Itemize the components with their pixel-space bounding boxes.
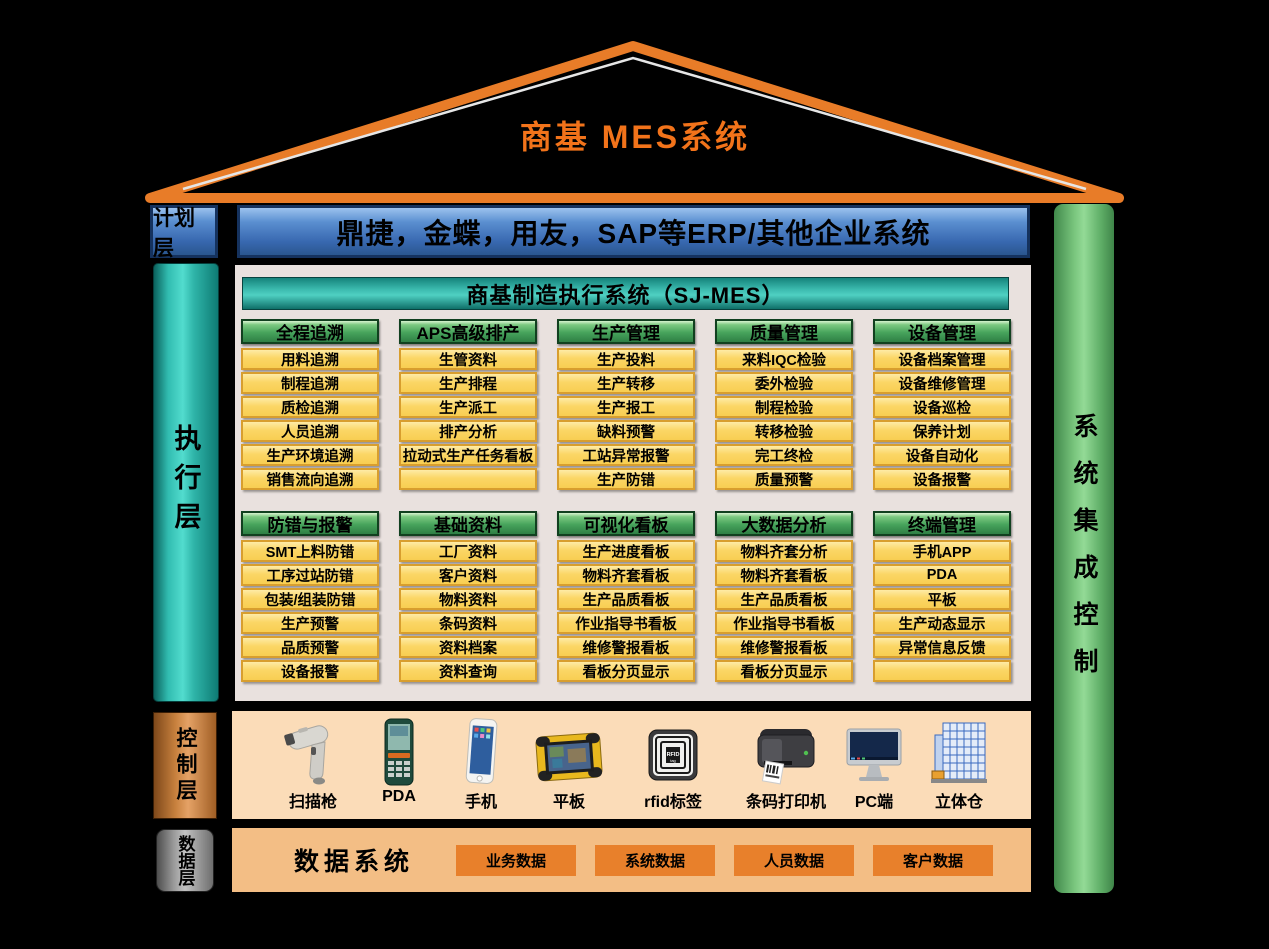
module-item: 平板 <box>873 588 1011 610</box>
module-item: 来料IQC检验 <box>715 348 853 370</box>
device-label: PDA <box>377 788 421 806</box>
module-item: 生产品质看板 <box>557 588 695 610</box>
device-label: rfid标签 <box>642 788 704 812</box>
module-item: 生产品质看板 <box>715 588 853 610</box>
module-item: 手机APP <box>873 540 1011 562</box>
module-item: 看板分页显示 <box>715 660 853 682</box>
control-content: 扫描枪 PDA 手机 平板 RFID tagrfid标签 <box>232 711 1031 819</box>
system-integration-bar: 系统集成控制 <box>1054 204 1114 893</box>
rfid-icon: RFID tag <box>642 715 704 787</box>
data-chip: 系统数据 <box>595 845 715 876</box>
module-item: 生产投料 <box>557 348 695 370</box>
module-item: 作业指导书看板 <box>715 612 853 634</box>
module-item: 资料查询 <box>399 660 537 682</box>
module-items: 来料IQC检验委外检验制程检验转移检验完工终检质量预警 <box>715 348 853 490</box>
module-item: 保养计划 <box>873 420 1011 442</box>
module-group: 防错与报警SMT上料防错工序过站防错包装/组装防错生产预警品质预警设备报警 <box>241 511 379 682</box>
module-header: 大数据分析 <box>715 511 853 536</box>
data-chips: 业务数据系统数据人员数据客户数据 <box>456 845 993 876</box>
module-group: APS高级排产生管资料生产排程生产派工排产分析拉动式生产任务看板 <box>399 319 537 490</box>
module-item: 资料档案 <box>399 636 537 658</box>
module-group: 大数据分析物料齐套分析物料齐套看板生产品质看板作业指导书看板维修警报看板看板分页… <box>715 511 853 682</box>
module-header: 终端管理 <box>873 511 1011 536</box>
module-item: 异常信息反馈 <box>873 636 1011 658</box>
module-item: 排产分析 <box>399 420 537 442</box>
module-items: 物料齐套分析物料齐套看板生产品质看板作业指导书看板维修警报看板看板分页显示 <box>715 540 853 682</box>
module-item: 完工终检 <box>715 444 853 466</box>
module-item: 制程追溯 <box>241 372 379 394</box>
module-item: 生产报工 <box>557 396 695 418</box>
data-system-title: 数据系统 <box>294 828 414 892</box>
device-label: 立体仓 <box>927 788 991 812</box>
module-item: 工序过站防错 <box>241 564 379 586</box>
device: 平板 <box>532 715 606 812</box>
module-items: SMT上料防错工序过站防错包装/组装防错生产预警品质预警设备报警 <box>241 540 379 682</box>
module-item: 物料齐套分析 <box>715 540 853 562</box>
module-item: 品质预警 <box>241 636 379 658</box>
device-label: PC端 <box>841 788 907 812</box>
device: RFID tagrfid标签 <box>642 715 704 812</box>
module-item: 生产排程 <box>399 372 537 394</box>
module-item: 维修警报看板 <box>557 636 695 658</box>
device-label: 手机 <box>460 788 502 812</box>
module-group: 质量管理来料IQC检验委外检验制程检验转移检验完工终检质量预警 <box>715 319 853 490</box>
module-header: 全程追溯 <box>241 319 379 344</box>
data-content: 数据系统 业务数据系统数据人员数据客户数据 <box>232 828 1031 892</box>
data-chip: 客户数据 <box>873 845 993 876</box>
module-item: 人员追溯 <box>241 420 379 442</box>
module-items: 设备档案管理设备维修管理设备巡检保养计划设备自动化设备报警 <box>873 348 1011 490</box>
device-label: 平板 <box>532 788 606 812</box>
device: 立体仓 <box>927 715 991 812</box>
module-group: 设备管理设备档案管理设备维修管理设备巡检保养计划设备自动化设备报警 <box>873 319 1011 490</box>
scanner-icon <box>278 715 348 787</box>
warehouse-icon <box>927 715 991 787</box>
module-header: 质量管理 <box>715 319 853 344</box>
module-items: 生管资料生产排程生产派工排产分析拉动式生产任务看板 <box>399 348 537 490</box>
module-items: 工厂资料客户资料物料资料条码资料资料档案资料查询 <box>399 540 537 682</box>
module-item: 销售流向追溯 <box>241 468 379 490</box>
module-item: 设备报警 <box>241 660 379 682</box>
module-item: 设备自动化 <box>873 444 1011 466</box>
pda-icon <box>377 715 421 787</box>
module-item: 转移检验 <box>715 420 853 442</box>
page-title: 商基 MES系统 <box>380 112 890 162</box>
device-label: 扫描枪 <box>278 788 348 812</box>
module-item: 缺料预警 <box>557 420 695 442</box>
module-header: APS高级排产 <box>399 319 537 344</box>
module-item: 委外检验 <box>715 372 853 394</box>
execution-layer-label: 执行层 <box>153 263 219 702</box>
device: PC端 <box>841 715 907 812</box>
device: 条码打印机 <box>746 715 826 812</box>
module-item <box>873 660 1011 682</box>
module-item: 物料齐套看板 <box>557 564 695 586</box>
module-item: 生产派工 <box>399 396 537 418</box>
module-items: 用料追溯制程追溯质检追溯人员追溯生产环境追溯销售流向追溯 <box>241 348 379 490</box>
module-row-bottom: 防错与报警SMT上料防错工序过站防错包装/组装防错生产预警品质预警设备报警基础资… <box>241 511 1011 682</box>
module-items: 生产投料生产转移生产报工缺料预警工站异常报警生产防错 <box>557 348 695 490</box>
module-item: 客户资料 <box>399 564 537 586</box>
module-item: 用料追溯 <box>241 348 379 370</box>
module-item: 生管资料 <box>399 348 537 370</box>
data-chip: 业务数据 <box>456 845 576 876</box>
data-layer-label: 数据层 <box>156 829 214 892</box>
module-item: 条码资料 <box>399 612 537 634</box>
module-item: 生产转移 <box>557 372 695 394</box>
device: 手机 <box>460 715 502 812</box>
module-item: SMT上料防错 <box>241 540 379 562</box>
module-item: 质量预警 <box>715 468 853 490</box>
data-chip: 人员数据 <box>734 845 854 876</box>
module-item: 作业指导书看板 <box>557 612 695 634</box>
module-items: 手机APPPDA平板生产动态显示异常信息反馈 <box>873 540 1011 682</box>
module-item: 设备档案管理 <box>873 348 1011 370</box>
pc-icon <box>841 715 907 787</box>
module-item: 生产防错 <box>557 468 695 490</box>
mes-panel-header: 商基制造执行系统（SJ-MES） <box>242 277 1009 310</box>
control-layer-label: 控制层 <box>153 712 217 819</box>
module-item: 制程检验 <box>715 396 853 418</box>
module-group: 终端管理手机APPPDA平板生产动态显示异常信息反馈 <box>873 511 1011 682</box>
module-group: 全程追溯用料追溯制程追溯质检追溯人员追溯生产环境追溯销售流向追溯 <box>241 319 379 490</box>
module-group: 可视化看板生产进度看板物料齐套看板生产品质看板作业指导书看板维修警报看板看板分页… <box>557 511 695 682</box>
module-group: 生产管理生产投料生产转移生产报工缺料预警工站异常报警生产防错 <box>557 319 695 490</box>
plan-layer-label: 计划层 <box>150 205 218 258</box>
barcode-printer-icon <box>746 715 826 787</box>
module-item: 生产预警 <box>241 612 379 634</box>
module-item: 质检追溯 <box>241 396 379 418</box>
module-item: 维修警报看板 <box>715 636 853 658</box>
module-items: 生产进度看板物料齐套看板生产品质看板作业指导书看板维修警报看板看板分页显示 <box>557 540 695 682</box>
module-item: 设备维修管理 <box>873 372 1011 394</box>
roof-outline <box>0 0 1269 220</box>
module-item: 设备报警 <box>873 468 1011 490</box>
module-header: 生产管理 <box>557 319 695 344</box>
module-item: 生产动态显示 <box>873 612 1011 634</box>
svg-text:tag: tag <box>670 758 676 763</box>
module-item: 包装/组装防错 <box>241 588 379 610</box>
module-header: 基础资料 <box>399 511 537 536</box>
module-item: 看板分页显示 <box>557 660 695 682</box>
module-item: 生产环境追溯 <box>241 444 379 466</box>
module-header: 设备管理 <box>873 319 1011 344</box>
device-label: 条码打印机 <box>746 788 826 812</box>
module-item: 工厂资料 <box>399 540 537 562</box>
module-item: 工站异常报警 <box>557 444 695 466</box>
module-item: 设备巡检 <box>873 396 1011 418</box>
tablet-icon <box>532 715 606 787</box>
device: PDA <box>377 715 421 806</box>
module-header: 防错与报警 <box>241 511 379 536</box>
module-group: 基础资料工厂资料客户资料物料资料条码资料资料档案资料查询 <box>399 511 537 682</box>
module-row-top: 全程追溯用料追溯制程追溯质检追溯人员追溯生产环境追溯销售流向追溯APS高级排产生… <box>241 319 1011 490</box>
module-item <box>399 468 537 490</box>
module-item: 生产进度看板 <box>557 540 695 562</box>
module-item: 物料资料 <box>399 588 537 610</box>
erp-systems-bar: 鼎捷，金蝶，用友，SAP等ERP/其他企业系统 <box>237 205 1030 258</box>
phone-icon <box>460 715 502 787</box>
module-header: 可视化看板 <box>557 511 695 536</box>
module-item: 物料齐套看板 <box>715 564 853 586</box>
module-item: 拉动式生产任务看板 <box>399 444 537 466</box>
mes-architecture-diagram: 商基 MES系统 计划层 鼎捷，金蝶，用友，SAP等ERP/其他企业系统 执行层… <box>0 0 1269 949</box>
device: 扫描枪 <box>278 715 348 812</box>
mes-panel: 商基制造执行系统（SJ-MES） 全程追溯用料追溯制程追溯质检追溯人员追溯生产环… <box>235 265 1031 701</box>
module-item: PDA <box>873 564 1011 586</box>
